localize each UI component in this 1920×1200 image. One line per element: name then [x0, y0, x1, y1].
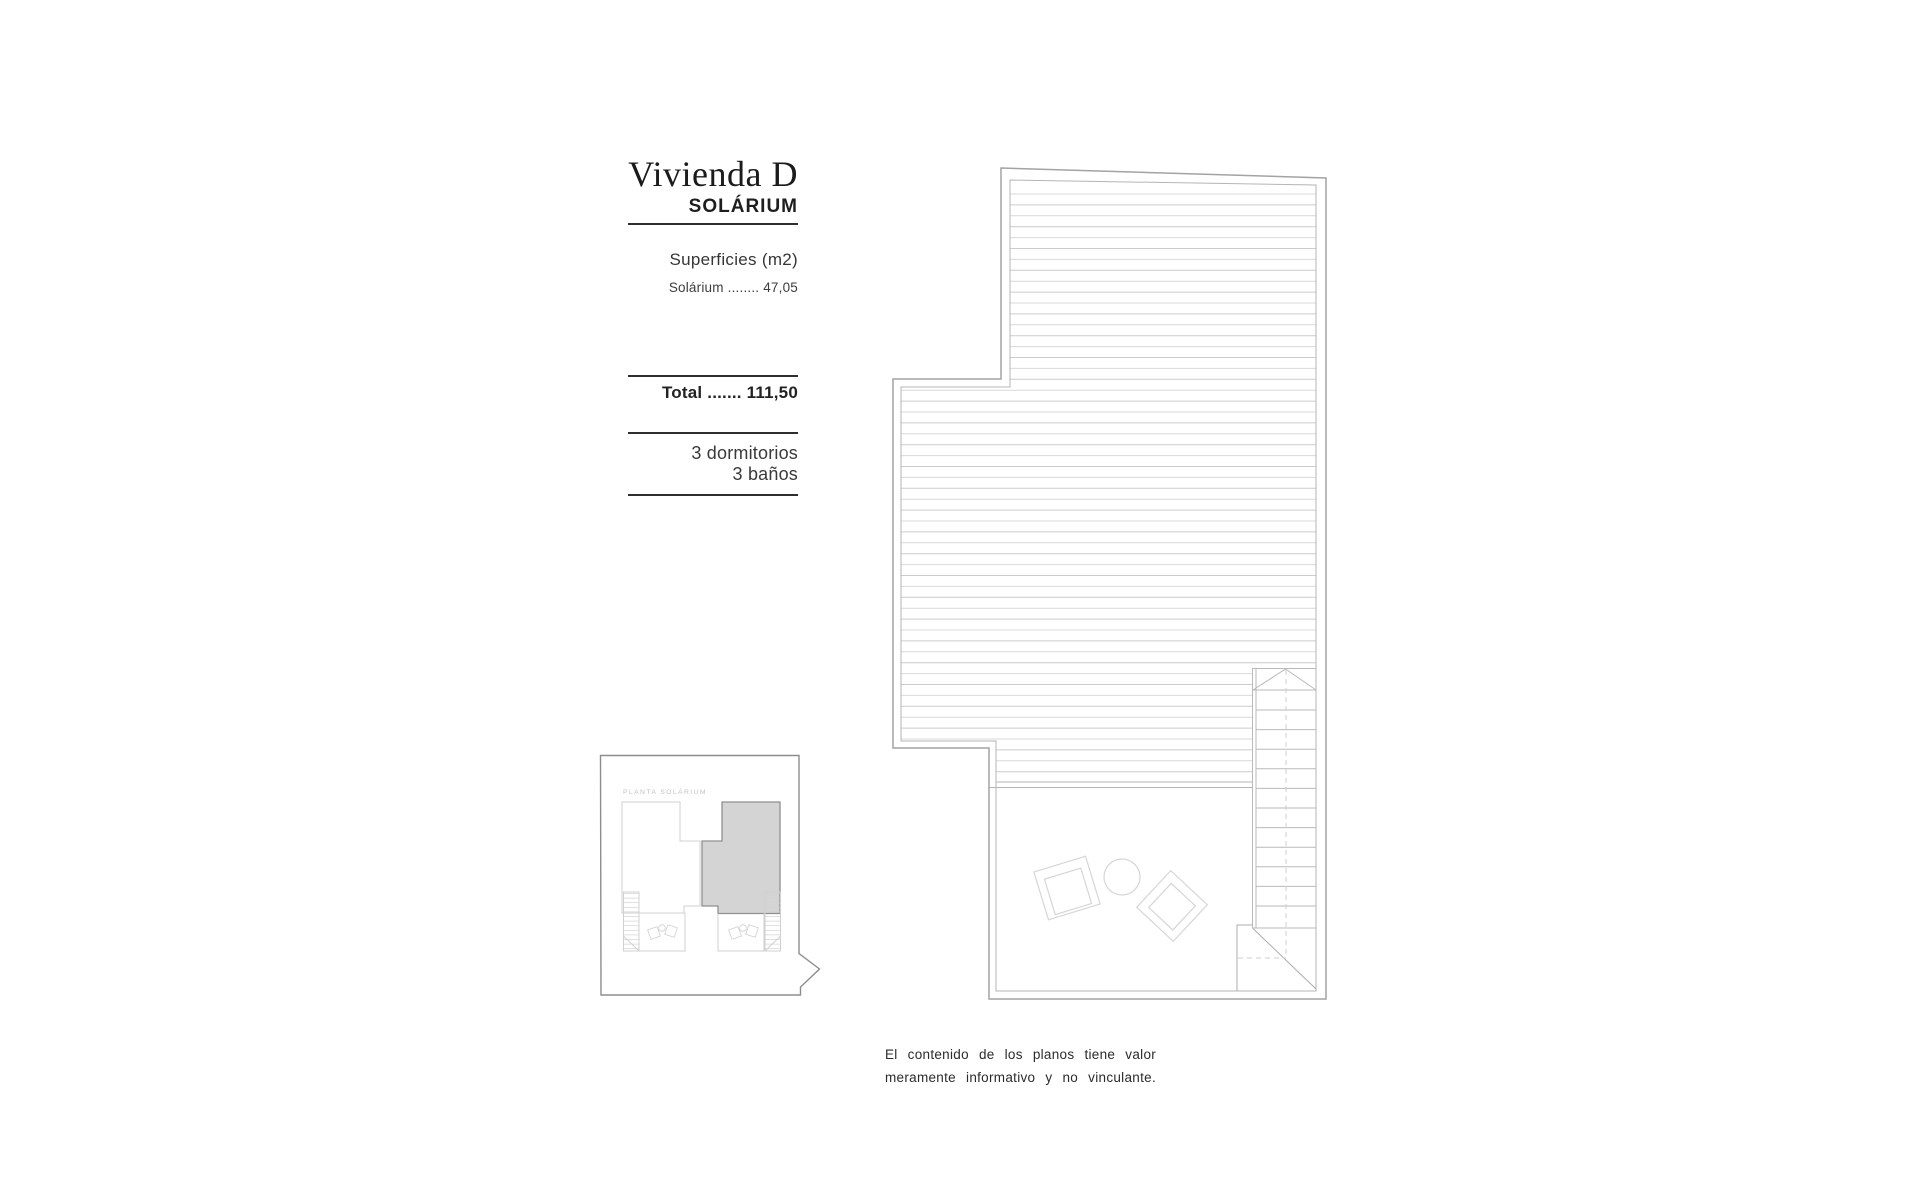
divider-top: [628, 223, 798, 225]
terrace-furniture: [1034, 856, 1207, 941]
disclaimer-line1: El contenido de los planos tiene valor: [885, 1047, 1156, 1062]
staircase: [1252, 668, 1316, 958]
page-title: Vivienda D: [628, 154, 798, 194]
page-subtitle: SOLÁRIUM: [628, 194, 798, 219]
surface-value: 47,05: [763, 280, 798, 295]
total-row: Total ....... 111,50: [628, 383, 798, 402]
surfaces-heading: Superficies (m2): [628, 250, 798, 269]
disclaimer-line2: meramente informativo y no vinculante.: [885, 1070, 1156, 1085]
info-panel: Vivienda D SOLÁRIUM Superficies (m2) Sol…: [628, 154, 798, 496]
surface-dots: ........: [728, 280, 760, 295]
surface-label: Solárium: [669, 280, 724, 295]
round-table: [1104, 859, 1140, 895]
key-plan-label: PLANTA SOLÁRIUM: [623, 787, 707, 796]
key-plan: PLANTA SOLÁRIUM: [592, 748, 832, 1004]
lounge-chair-left: [1034, 856, 1100, 920]
divider-above-total: [628, 375, 798, 377]
divider-below-total: [628, 432, 798, 434]
feature-bathrooms: 3 baños: [628, 464, 798, 485]
surface-row-solarium: Solárium ........ 47,05: [628, 280, 798, 295]
floor-plan-solarium: [885, 160, 1335, 1010]
plan-page: Vivienda D SOLÁRIUM Superficies (m2) Sol…: [0, 0, 1920, 1200]
solarium-deck-hatch: [888, 194, 1332, 772]
total-dots: .......: [707, 383, 741, 402]
deck-edge: [990, 782, 1253, 788]
feature-bedrooms: 3 dormitorios: [628, 443, 798, 464]
disclaimer: El contenido de los planos tiene valor m…: [885, 1044, 1156, 1089]
stair-landing-box: [1237, 925, 1316, 991]
perimeter-walls: [893, 168, 1326, 999]
divider-bottom: [628, 494, 798, 496]
total-label: Total: [662, 383, 702, 402]
total-value: 111,50: [747, 383, 798, 402]
lounge-chair-right: [1137, 871, 1208, 942]
